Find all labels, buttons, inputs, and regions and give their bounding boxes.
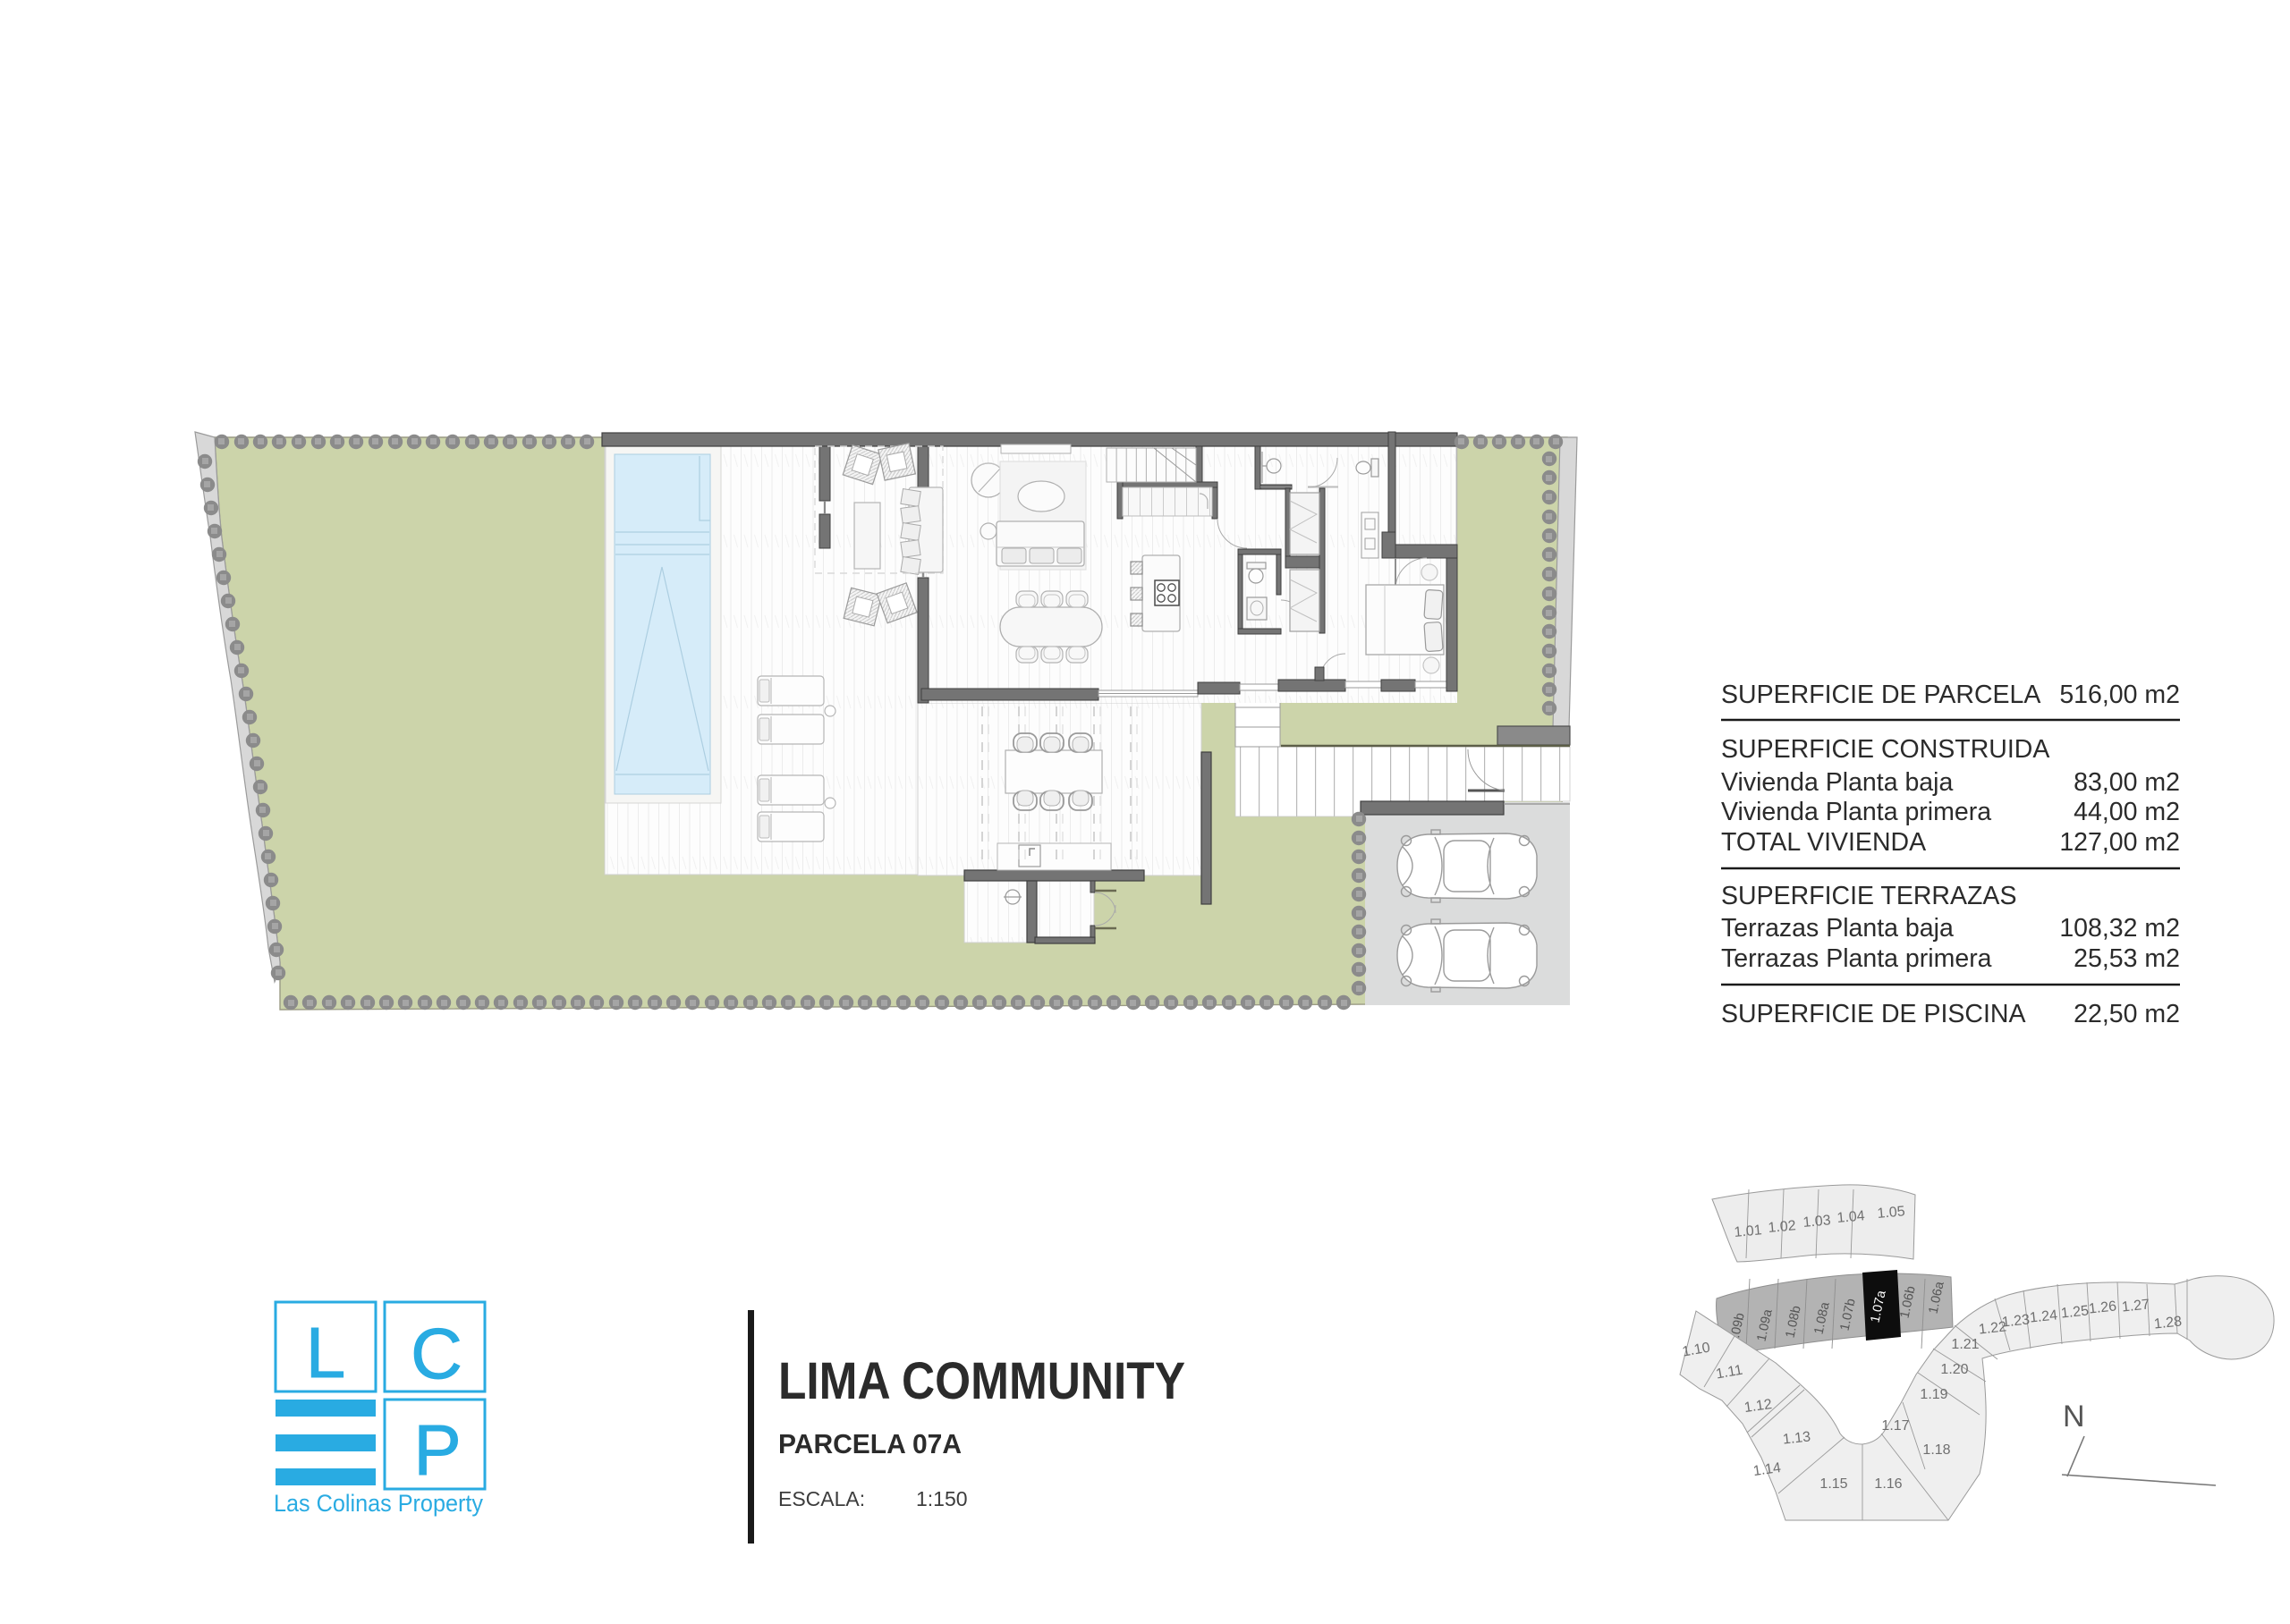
svg-text:Las Colinas Property: Las Colinas Property: [274, 1490, 483, 1517]
svg-text:SUPERFICIE DE PISCINA: SUPERFICIE DE PISCINA: [1721, 1000, 2025, 1028]
svg-text:127,00 m2: 127,00 m2: [2059, 828, 2180, 857]
svg-text:1.16: 1.16: [1874, 1476, 1902, 1492]
svg-text:SUPERFICIE TERRAZAS: SUPERFICIE TERRAZAS: [1721, 882, 2016, 910]
svg-text:1.03: 1.03: [1802, 1213, 1832, 1231]
svg-text:1.25: 1.25: [2060, 1303, 2090, 1321]
svg-text:25,53 m2: 25,53 m2: [2074, 944, 2180, 973]
svg-text:Terrazas Planta primera: Terrazas Planta primera: [1721, 944, 1992, 973]
svg-text:1.18: 1.18: [1922, 1442, 1950, 1458]
svg-text:516,00 m2: 516,00 m2: [2059, 681, 2180, 709]
svg-text:108,32 m2: 108,32 m2: [2059, 914, 2180, 943]
svg-text:1.28: 1.28: [2153, 1314, 2183, 1332]
svg-text:1.24: 1.24: [2029, 1307, 2058, 1325]
svg-text:1.04: 1.04: [1836, 1208, 1866, 1226]
svg-text:Vivienda Planta primera: Vivienda Planta primera: [1721, 798, 1991, 826]
svg-text:C: C: [411, 1314, 462, 1393]
svg-text:L: L: [306, 1313, 346, 1392]
svg-text:N: N: [2063, 1400, 2085, 1434]
svg-text:1.13: 1.13: [1782, 1429, 1811, 1447]
svg-text:Terrazas Planta baja: Terrazas Planta baja: [1721, 914, 1954, 943]
svg-text:PARCELA 07A: PARCELA 07A: [778, 1428, 962, 1459]
svg-text:1:150: 1:150: [916, 1487, 968, 1510]
svg-text:Vivienda Planta baja: Vivienda Planta baja: [1721, 768, 1953, 797]
svg-text:44,00 m2: 44,00 m2: [2074, 798, 2180, 826]
svg-text:1.17: 1.17: [1881, 1418, 1909, 1434]
svg-text:TOTAL VIVIENDA: TOTAL VIVIENDA: [1721, 828, 1926, 857]
svg-text:P: P: [413, 1410, 461, 1490]
svg-text:1.19: 1.19: [1920, 1387, 1947, 1402]
svg-text:1.23: 1.23: [2001, 1312, 2031, 1330]
svg-text:1.26: 1.26: [2088, 1298, 2117, 1316]
svg-text:SUPERFICIE DE PARCELA: SUPERFICIE DE PARCELA: [1721, 681, 2040, 709]
svg-text:83,00 m2: 83,00 m2: [2074, 768, 2180, 797]
svg-text:SUPERFICIE CONSTRUIDA: SUPERFICIE CONSTRUIDA: [1721, 735, 2049, 764]
svg-text:LIMA COMMUNITY: LIMA COMMUNITY: [778, 1352, 1185, 1410]
svg-text:1.01: 1.01: [1734, 1222, 1763, 1240]
svg-text:1.05: 1.05: [1877, 1204, 1906, 1222]
svg-text:1.20: 1.20: [1940, 1362, 1968, 1377]
svg-text:1.21: 1.21: [1951, 1337, 1979, 1352]
svg-text:22,50 m2: 22,50 m2: [2074, 1000, 2180, 1028]
svg-text:1.15: 1.15: [1819, 1476, 1847, 1492]
svg-text:1.02: 1.02: [1768, 1218, 1797, 1236]
svg-text:ESCALA:: ESCALA:: [778, 1487, 865, 1510]
svg-text:1.27: 1.27: [2121, 1297, 2150, 1315]
